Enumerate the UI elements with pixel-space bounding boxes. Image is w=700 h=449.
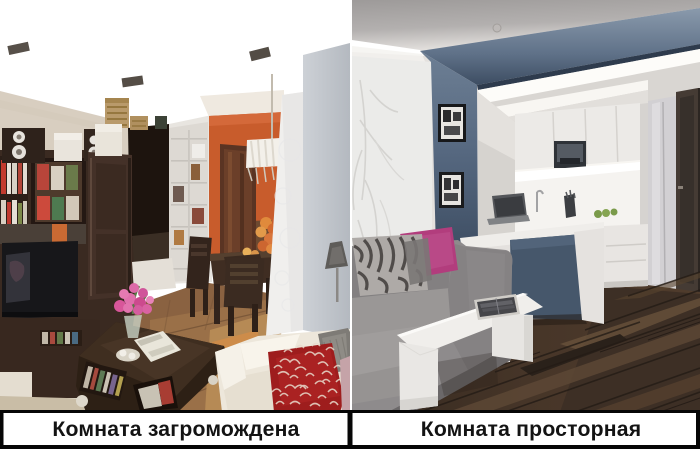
svg-text:Комната загромождена: Комната загромождена: [52, 418, 299, 441]
svg-text:Комната просторная: Комната просторная: [421, 418, 642, 441]
